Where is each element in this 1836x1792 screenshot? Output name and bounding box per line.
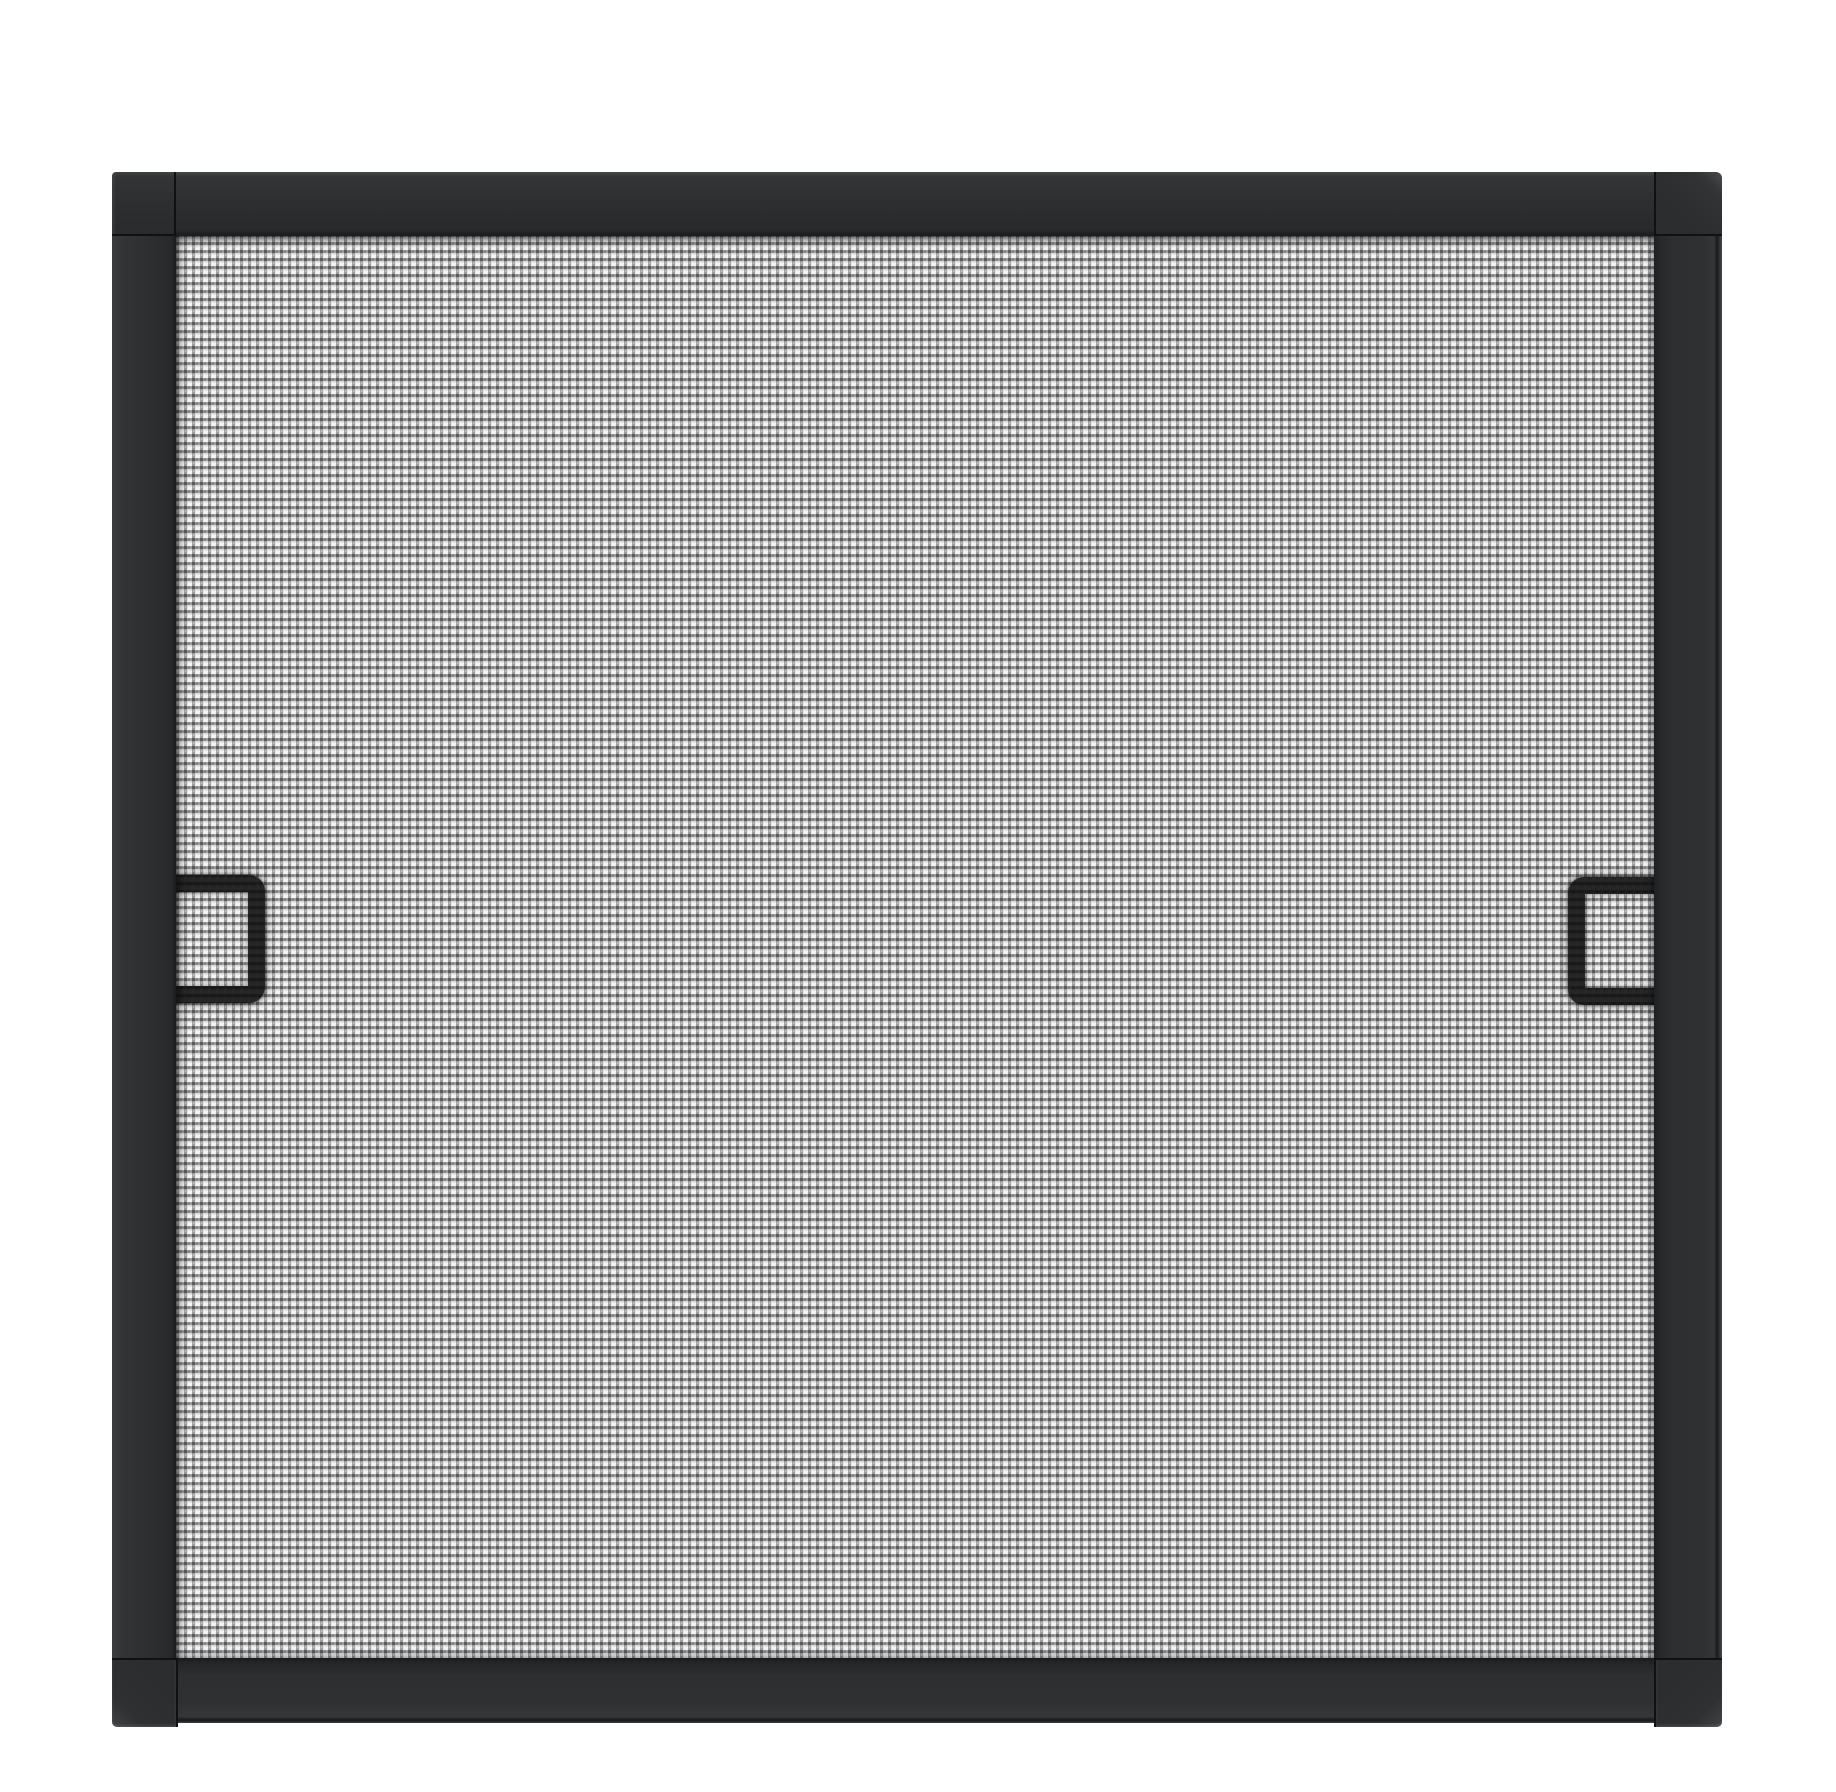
left-pull-tab [176, 875, 265, 1003]
frame-corner-bottom-right [1654, 1658, 1722, 1727]
frame-rail-left [112, 234, 176, 1658]
right-pull-tab [1568, 877, 1656, 1005]
window-screen [112, 172, 1722, 1727]
frame-rail-bottom [176, 1658, 1656, 1723]
product-photo-canvas [0, 0, 1836, 1792]
frame-corner-top-right [1654, 172, 1722, 236]
frame-corner-bottom-left [112, 1658, 178, 1727]
screen-mesh [176, 234, 1656, 1659]
mesh-weave-pattern [176, 234, 1656, 1659]
frame-rail-top [174, 172, 1656, 236]
frame-corner-top-left [112, 172, 176, 236]
frame-rail-right [1654, 234, 1722, 1658]
